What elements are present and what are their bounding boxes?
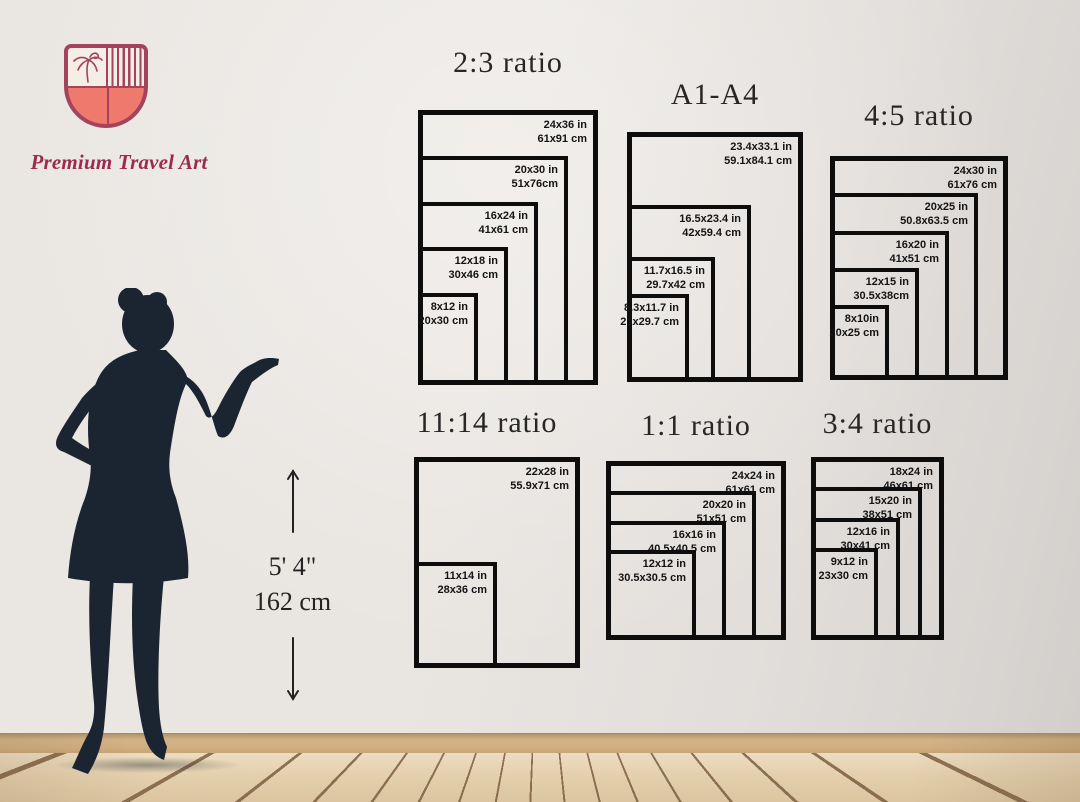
size-inches: 16x20 in xyxy=(889,238,939,252)
size-inches: 20x20 in xyxy=(696,498,746,512)
size-inches: 8x10in xyxy=(829,312,879,326)
size-cm: 23x30 cm xyxy=(818,569,868,583)
size-label: 16.5x23.4 in42x59.4 cm xyxy=(679,212,741,240)
group-title-2-3: 2:3 ratio xyxy=(418,46,598,80)
size-rect: 8.3x11.7 in21x29.7 cm xyxy=(627,294,689,382)
group-title-1-1: 1:1 ratio xyxy=(606,409,786,443)
size-label: 8x10in20x25 cm xyxy=(829,312,879,340)
size-label: 16x24 in41x61 cm xyxy=(478,209,528,237)
down-arrow-icon xyxy=(286,636,300,702)
size-cm: 59.1x84.1 cm xyxy=(724,154,792,168)
size-cm: 20x25 cm xyxy=(829,326,879,340)
height-imperial-label: 5' 4" xyxy=(230,552,355,582)
size-cm: 29.7x42 cm xyxy=(644,278,705,292)
size-inches: 12x16 in xyxy=(840,525,890,539)
size-cm: 42x59.4 cm xyxy=(679,226,741,240)
size-inches: 24x36 in xyxy=(537,118,587,132)
size-cm: 21x29.7 cm xyxy=(620,315,679,329)
size-label: 22x28 in55.9x71 cm xyxy=(510,465,569,493)
size-inches: 18x24 in xyxy=(883,465,933,479)
size-cm: 61x91 cm xyxy=(537,132,587,146)
size-inches: 11x14 in xyxy=(437,569,487,583)
size-group-4-5: 24x30 in61x76 cm20x25 in50.8x63.5 cm16x2… xyxy=(830,156,1008,380)
size-inches: 15x20 in xyxy=(862,494,912,508)
size-inches: 24x24 in xyxy=(725,469,775,483)
size-cm: 41x61 cm xyxy=(478,223,528,237)
brand-logo-shield-icon xyxy=(64,44,148,128)
shield-palm-panel xyxy=(68,48,108,88)
size-inches: 22x28 in xyxy=(510,465,569,479)
size-inches: 24x30 in xyxy=(947,164,997,178)
size-cm: 50.8x63.5 cm xyxy=(900,214,968,228)
size-label: 12x18 in30x46 cm xyxy=(448,254,498,282)
size-group-1-1: 24x24 in61x61 cm20x20 in51x51 cm16x16 in… xyxy=(606,461,786,640)
size-inches: 11.7x16.5 in xyxy=(644,264,705,278)
size-inches: 9x12 in xyxy=(818,555,868,569)
size-cm: 55.9x71 cm xyxy=(510,479,569,493)
size-group-3-4: 18x24 in46x61 cm15x20 in38x51 cm12x16 in… xyxy=(811,457,944,640)
up-arrow-icon xyxy=(286,468,300,534)
size-label: 12x12 in30.5x30.5 cm xyxy=(618,557,686,585)
size-inches: 20x25 in xyxy=(900,200,968,214)
palm-tree-icon xyxy=(68,48,106,86)
size-label: 11.7x16.5 in29.7x42 cm xyxy=(644,264,705,292)
size-inches: 12x15 in xyxy=(853,275,909,289)
size-cm: 61x76 cm xyxy=(947,178,997,192)
shield-divider xyxy=(107,88,109,124)
size-label: 9x12 in23x30 cm xyxy=(818,555,868,583)
size-rect: 11x14 in28x36 cm xyxy=(414,562,497,668)
brand-name: Premium Travel Art xyxy=(24,150,214,175)
size-inches: 23.4x33.1 in xyxy=(724,140,792,154)
size-cm: 30x46 cm xyxy=(448,268,498,282)
size-label: 8x12 in20x30 cm xyxy=(418,300,468,328)
size-label: 20x25 in50.8x63.5 cm xyxy=(900,200,968,228)
size-inches: 20x30 in xyxy=(512,163,559,177)
size-rect: 12x12 in30.5x30.5 cm xyxy=(606,550,696,640)
size-guide-image: Premium Travel Art 5' 4 xyxy=(0,0,1080,802)
size-inches: 8.3x11.7 in xyxy=(620,301,679,315)
size-rect: 8x12 in20x30 cm xyxy=(418,293,478,385)
size-label: 16x20 in41x51 cm xyxy=(889,238,939,266)
woman-silhouette xyxy=(28,288,283,780)
size-inches: 16x16 in xyxy=(648,528,716,542)
group-title-4-5: 4:5 ratio xyxy=(830,99,1008,133)
size-inches: 16x24 in xyxy=(478,209,528,223)
group-title-3-4: 3:4 ratio xyxy=(811,407,944,441)
group-title-11-14: 11:14 ratio xyxy=(404,406,570,440)
size-inches: 12x12 in xyxy=(618,557,686,571)
size-rect: 9x12 in23x30 cm xyxy=(811,548,878,640)
size-cm: 41x51 cm xyxy=(889,252,939,266)
size-cm: 51x76cm xyxy=(512,177,559,191)
size-cm: 30.5x38cm xyxy=(853,289,909,303)
size-label: 11x14 in28x36 cm xyxy=(437,569,487,597)
size-group-11-14: 22x28 in55.9x71 cm11x14 in28x36 cm xyxy=(414,457,580,668)
size-inches: 12x18 in xyxy=(448,254,498,268)
size-inches: 16.5x23.4 in xyxy=(679,212,741,226)
size-cm: 28x36 cm xyxy=(437,583,487,597)
size-group-2-3: 24x36 in61x91 cm20x30 in51x76cm16x24 in4… xyxy=(418,110,598,385)
size-label: 12x15 in30.5x38cm xyxy=(853,275,909,303)
size-cm: 20x30 cm xyxy=(418,314,468,328)
size-label: 24x30 in61x76 cm xyxy=(947,164,997,192)
shield-stripes-panel xyxy=(108,48,144,88)
size-label: 20x30 in51x76cm xyxy=(512,163,559,191)
height-metric-label: 162 cm xyxy=(230,587,355,617)
size-rect: 8x10in20x25 cm xyxy=(830,305,889,380)
group-title-a1-a4: A1-A4 xyxy=(627,78,803,112)
size-group-a1-a4: 23.4x33.1 in59.1x84.1 cm16.5x23.4 in42x5… xyxy=(627,132,803,382)
size-label: 8.3x11.7 in21x29.7 cm xyxy=(620,301,679,329)
size-inches: 8x12 in xyxy=(418,300,468,314)
size-cm: 30.5x30.5 cm xyxy=(618,571,686,585)
size-label: 23.4x33.1 in59.1x84.1 cm xyxy=(724,140,792,168)
size-label: 24x36 in61x91 cm xyxy=(537,118,587,146)
